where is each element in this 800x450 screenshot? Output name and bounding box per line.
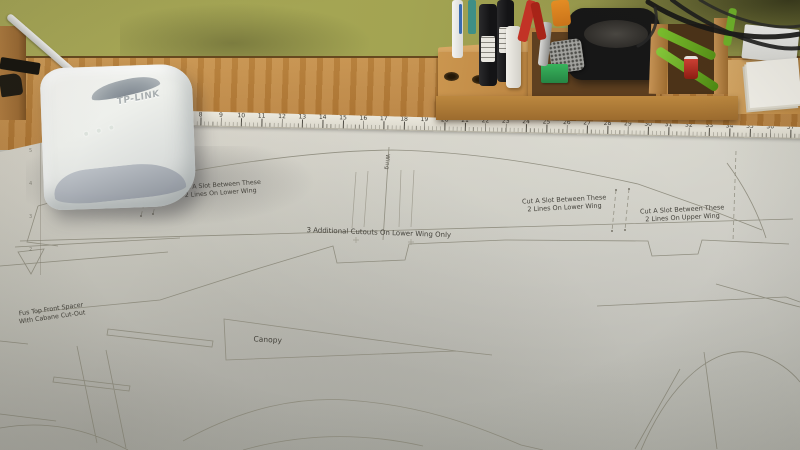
black-cables	[0, 0, 800, 450]
workbench-photo: 8910111213141516171819202122232425262728…	[0, 0, 800, 450]
